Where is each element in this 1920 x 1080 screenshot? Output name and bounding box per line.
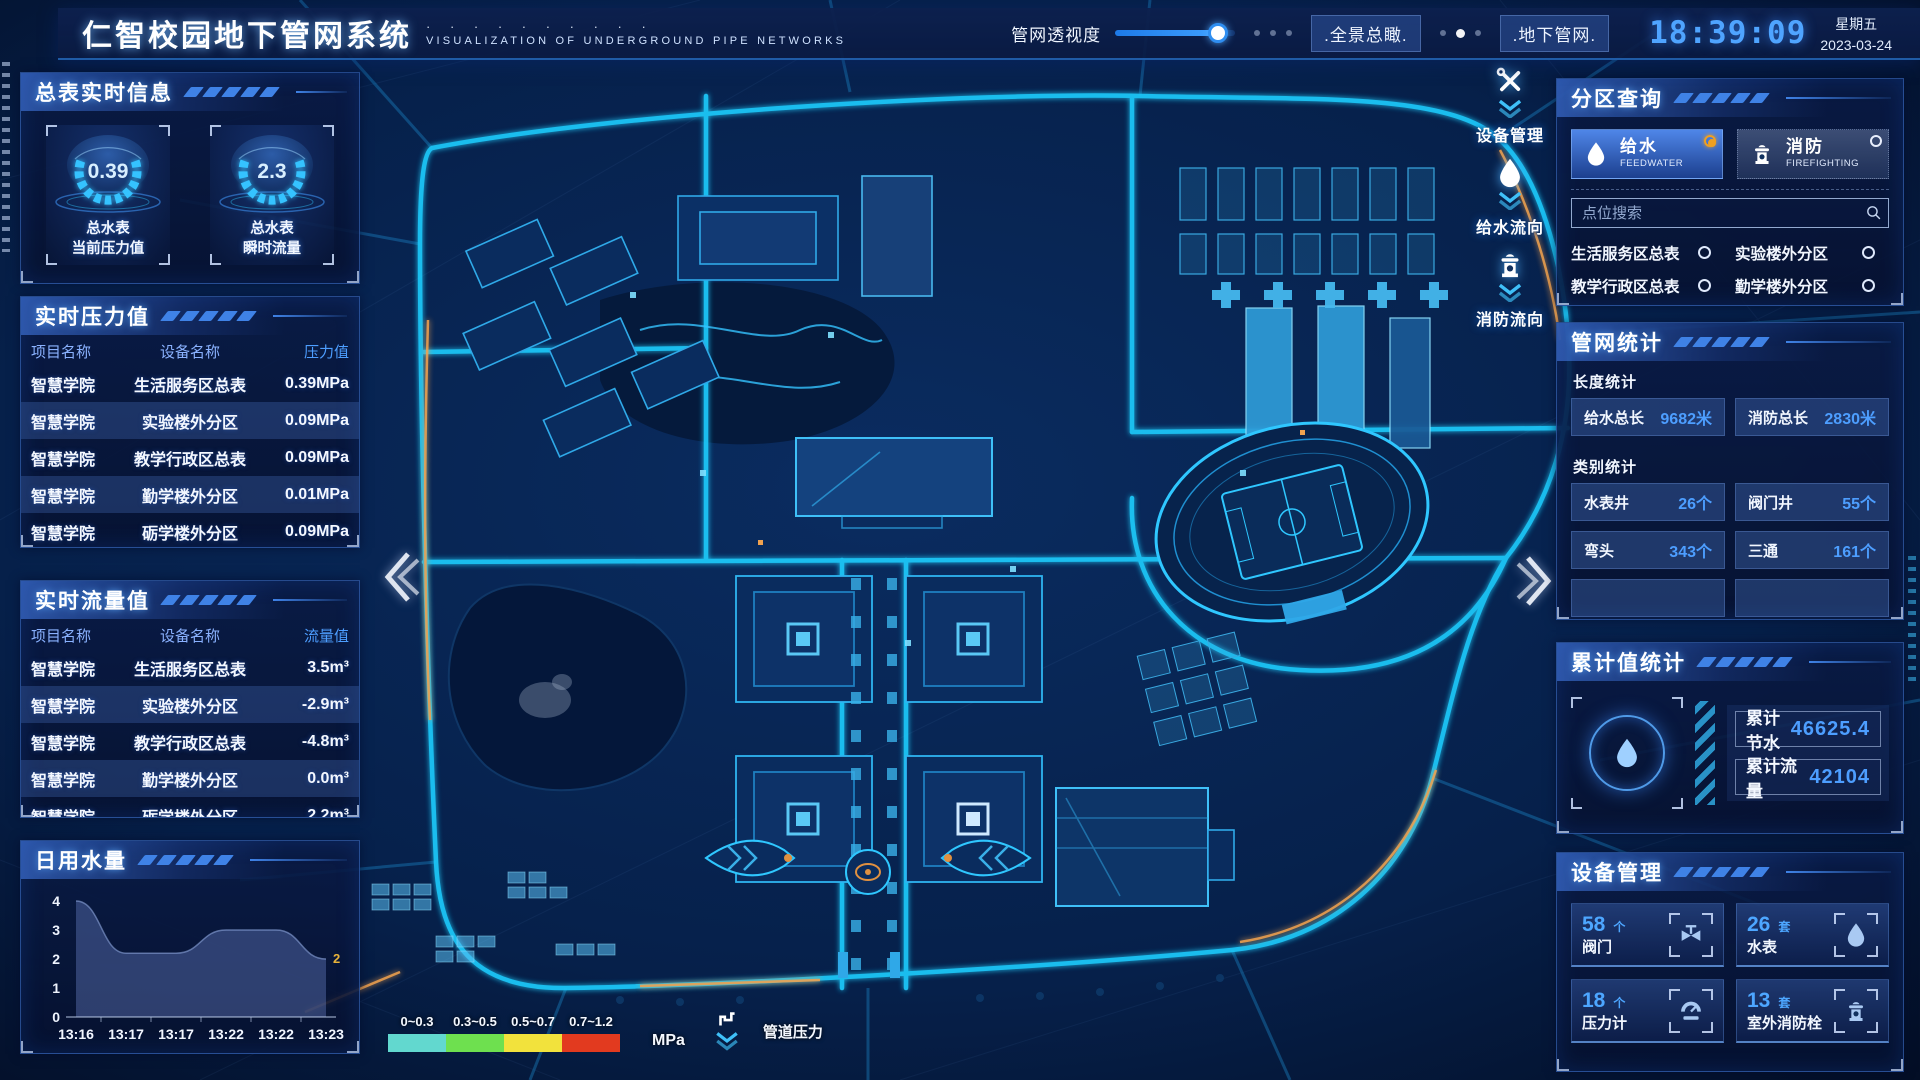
tools-icon (1493, 64, 1527, 98)
hydrant-icon (1493, 248, 1527, 282)
pressure-table: 智慧学院生活服务区总表0.39MPa智慧学院实验楼外分区0.09MPa智慧学院教… (21, 365, 359, 548)
cumulative-row: 累计流量42104 (1735, 759, 1881, 795)
title-decoration (164, 311, 259, 321)
title-decoration (164, 595, 259, 605)
svg-text:13:22: 13:22 (258, 1026, 294, 1042)
device-card[interactable]: 18个压力计 (1571, 979, 1724, 1043)
pipe-pressure-icon (707, 1008, 747, 1052)
pressure-legend: 0~0.30.3~0.50.5~0.70.7~1.2 MPa 管道压力 (388, 1008, 823, 1052)
svg-text:13:16: 13:16 (58, 1026, 94, 1042)
panel-title: 管网统计 (1571, 327, 1663, 357)
panel-device-mgmt: 设备管理 58个阀门26套水表18个压力计13套室外消防栓 (1556, 852, 1904, 1072)
title-decoration (1677, 337, 1772, 347)
legend-unit: MPa (652, 1032, 685, 1050)
chevron-down-icon (1495, 284, 1525, 302)
map-tool-column: 设备管理给水流向消防流向 (1462, 64, 1558, 340)
hydrant-icon (1748, 140, 1776, 168)
chevron-down-icon (1495, 192, 1525, 210)
clock: 18:39:09 (1649, 15, 1806, 51)
cumulative-values: 累计节水46625.4累计流量42104 (1727, 705, 1889, 801)
device-card[interactable]: 13套室外消防栓 (1736, 979, 1889, 1043)
gauge-card: 0.39总水表当前压力值 (46, 125, 170, 265)
table-row: 智慧学院勤学楼外分区0.01MPa (21, 476, 359, 513)
radio-icon (1870, 135, 1882, 147)
title-decoration (141, 855, 236, 865)
panel-title: 累计值统计 (1571, 647, 1686, 677)
tab-label: 给水 (1620, 138, 1683, 157)
device-card[interactable]: 26套水表 (1736, 903, 1889, 967)
panel-cumulative: 累计值统计 累计节水46625.4累计流量42104 (1556, 642, 1904, 834)
search-icon[interactable] (1865, 204, 1882, 221)
table-row: 智慧学院实验楼外分区0.09MPa (21, 402, 359, 439)
query-option[interactable]: 砺学楼外分区 (1571, 302, 1725, 306)
tab-firefighting[interactable]: 消防FIREFIGHTING (1737, 129, 1889, 179)
svg-text:4: 4 (52, 893, 60, 909)
query-option[interactable]: 勤学楼外分区 (1735, 269, 1889, 302)
stat-box: 弯头343个 (1571, 531, 1725, 569)
stat-box-clipped (1735, 579, 1889, 617)
hydrant-icon (1834, 989, 1878, 1033)
svg-text:3: 3 (52, 922, 60, 938)
query-option[interactable]: 宿舍区泵房 (1735, 302, 1889, 306)
stat-box: 阀门井55个 (1735, 483, 1889, 521)
table-row: 智慧学院砺学楼外分区0.09MPa (21, 513, 359, 548)
gauge-area: 0.39总水表当前压力值2.3总水表瞬时流量 (21, 111, 359, 265)
water-drop-icon (1493, 156, 1527, 190)
dashboard: 仁智校园地下管网系统 · · · · · · · · · · VISUALIZA… (0, 0, 1920, 1080)
svg-text:1: 1 (52, 980, 60, 996)
tab-sublabel: FIREFIGHTING (1786, 159, 1859, 169)
dots-separator (1435, 29, 1486, 38)
stat-box: 水表井26个 (1571, 483, 1725, 521)
divider (1571, 189, 1889, 190)
flow-table: 智慧学院生活服务区总表3.5m³智慧学院实验楼外分区-2.9m³智慧学院教学行政… (21, 649, 359, 818)
map-tool-tools-icon[interactable]: 设备管理 (1476, 64, 1544, 146)
water-drop-icon (1582, 140, 1610, 168)
col-project: 项目名称 (31, 341, 123, 362)
tab-label: 消防 (1786, 138, 1859, 157)
query-option-list: 生活服务区总表实验楼外分区教学行政区总表勤学楼外分区砺学楼外分区宿舍区泵房 (1557, 228, 1903, 306)
weekday: 星期五 (1835, 14, 1877, 34)
stripe-divider (1695, 701, 1715, 805)
length-stats: 给水总长9682米消防总长2830米 (1557, 398, 1903, 436)
radio-icon (1698, 279, 1711, 292)
svg-text:2.3: 2.3 (257, 160, 286, 183)
panel-meter-summary: 总表实时信息 0.39总水表当前压力值2.3总水表瞬时流量 (20, 72, 360, 284)
edge-ticks-right (1908, 556, 1916, 686)
device-card[interactable]: 58个阀门 (1571, 903, 1724, 967)
chevron-right-icon[interactable] (1514, 552, 1558, 610)
title-decoration (187, 87, 282, 97)
col-flow: 流量值 (257, 625, 349, 646)
legend-segment: 0~0.3 (388, 1014, 446, 1052)
legend-segment: 0.7~1.2 (562, 1014, 620, 1052)
date-block: 星期五 2023-03-24 (1820, 14, 1892, 53)
table-header: 项目名称 设备名称 流量值 (21, 621, 359, 649)
panel-daily-water: 日用水量 0123413:1613:1713:1713:2213:2213:23… (20, 840, 360, 1054)
chevron-down-icon (1495, 100, 1525, 118)
length-stats-label: 长度统计 (1557, 361, 1903, 398)
cumulative-row: 累计节水46625.4 (1735, 711, 1881, 747)
panel-title: 总表实时信息 (35, 77, 173, 107)
query-option[interactable]: 实验楼外分区 (1735, 236, 1889, 269)
radio-selected-icon (1704, 135, 1716, 147)
app-subtitle: VISUALIZATION OF UNDERGROUND PIPE NETWOR… (426, 36, 846, 47)
slider-fill (1115, 30, 1218, 36)
stat-box-clipped (1571, 579, 1725, 617)
svg-text:2: 2 (52, 951, 60, 967)
table-header: 项目名称 设备名称 压力值 (21, 337, 359, 365)
legend-segment: 0.3~0.5 (446, 1014, 504, 1052)
radio-icon (1862, 279, 1875, 292)
table-row: 智慧学院生活服务区总表3.5m³ (21, 649, 359, 686)
svg-text:13:23: 13:23 (308, 1026, 344, 1042)
svg-text:13:17: 13:17 (158, 1026, 194, 1042)
panel-title: 日用水量 (35, 845, 127, 875)
table-row: 智慧学院砺学楼外分区2.2m³ (21, 797, 359, 818)
svg-text:13:17: 13:17 (108, 1026, 144, 1042)
panel-realtime-pressure: 实时压力值 项目名称 设备名称 压力值 智慧学院生活服务区总表0.39MPa智慧… (20, 296, 360, 548)
valve-icon (1669, 913, 1713, 957)
chevron-left-icon[interactable] (378, 548, 422, 606)
pressure-gauge-icon (1669, 989, 1713, 1033)
panel-title: 设备管理 (1571, 857, 1663, 887)
search-input[interactable] (1571, 198, 1889, 228)
table-row: 智慧学院勤学楼外分区0.0m³ (21, 760, 359, 797)
svg-text:0: 0 (52, 1009, 60, 1025)
map-tool-water-drop-icon[interactable]: 给水流向 (1476, 156, 1544, 238)
col-pressure: 压力值 (257, 341, 349, 362)
underground-button[interactable]: .地下管网. (1500, 15, 1609, 52)
panel-realtime-flow: 实时流量值 项目名称 设备名称 流量值 智慧学院生活服务区总表3.5m³智慧学院… (20, 580, 360, 818)
stat-box: 消防总长2830米 (1735, 398, 1889, 436)
legend-label: 管道压力 (763, 1021, 823, 1042)
panel-title: 实时流量值 (35, 585, 150, 615)
col-device: 设备名称 (123, 341, 257, 362)
slider-knob[interactable] (1208, 23, 1228, 43)
cumulative-icon-box (1571, 697, 1683, 809)
gauge-card: 2.3总水表瞬时流量 (210, 125, 334, 265)
query-option[interactable]: 生活服务区总表 (1571, 236, 1725, 269)
col-project: 项目名称 (31, 625, 123, 646)
stat-box: 三通161个 (1735, 531, 1889, 569)
radio-icon (1698, 246, 1711, 259)
radio-icon (1862, 246, 1875, 259)
table-row: 智慧学院生活服务区总表0.39MPa (21, 365, 359, 402)
dots-separator (1249, 30, 1297, 36)
app-title: 仁智校园地下管网系统 (82, 11, 412, 55)
pipe-opacity-label: 管网透视度 (1011, 21, 1101, 46)
stat-box: 给水总长9682米 (1571, 398, 1725, 436)
col-device: 设备名称 (123, 625, 257, 646)
header-bar: 仁智校园地下管网系统 · · · · · · · · · · VISUALIZA… (58, 8, 1920, 60)
tab-feedwater[interactable]: 给水FEEDWATER (1571, 129, 1723, 179)
water-drop-icon (1834, 913, 1878, 957)
legend-color-bar: 0~0.30.3~0.50.5~0.70.7~1.2 (388, 1014, 620, 1052)
tab-sublabel: FEEDWATER (1620, 159, 1683, 169)
title-decoration (1700, 657, 1795, 667)
panel-title: 分区查询 (1571, 83, 1663, 113)
app-subtitle-block: · · · · · · · · · · VISUALIZATION OF UND… (426, 20, 846, 47)
overview-button[interactable]: .全景总瞰. (1311, 15, 1420, 52)
date: 2023-03-24 (1820, 37, 1892, 53)
pipe-opacity-slider[interactable] (1115, 30, 1235, 36)
daily-water-chart: 0123413:1613:1713:1713:2213:2213:232 (30, 887, 350, 1053)
map-tool-hydrant-icon[interactable]: 消防流向 (1476, 248, 1544, 330)
category-stats-label: 类别统计 (1557, 446, 1903, 483)
panel-title: 实时压力值 (35, 301, 150, 331)
svg-text:2: 2 (333, 951, 340, 966)
table-row: 智慧学院教学行政区总表-4.8m³ (21, 723, 359, 760)
query-option[interactable]: 教学行政区总表 (1571, 269, 1725, 302)
table-row: 智慧学院教学行政区总表0.09MPa (21, 439, 359, 476)
svg-text:0.39: 0.39 (88, 160, 129, 183)
panel-pipe-stats: 管网统计 长度统计 给水总长9682米消防总长2830米 类别统计 水表井26个… (1556, 322, 1904, 620)
device-card-grid: 58个阀门26套水表18个压力计13套室外消防栓 (1557, 891, 1903, 1043)
legend-segment: 0.5~0.7 (504, 1014, 562, 1052)
title-decoration (1677, 867, 1772, 877)
svg-text:13:22: 13:22 (208, 1026, 244, 1042)
table-row: 智慧学院实验楼外分区-2.9m³ (21, 686, 359, 723)
category-stats: 水表井26个阀门井55个弯头343个三通161个 (1557, 483, 1903, 617)
edge-ticks-left (2, 62, 10, 252)
water-drop-icon (1589, 715, 1665, 791)
panel-zone-query: 分区查询 给水FEEDWATER 消防FIREFIGHTING 生活服务区总表实… (1556, 78, 1904, 306)
header-dots: · · · · · · · · · · (426, 20, 846, 33)
title-decoration (1677, 93, 1772, 103)
